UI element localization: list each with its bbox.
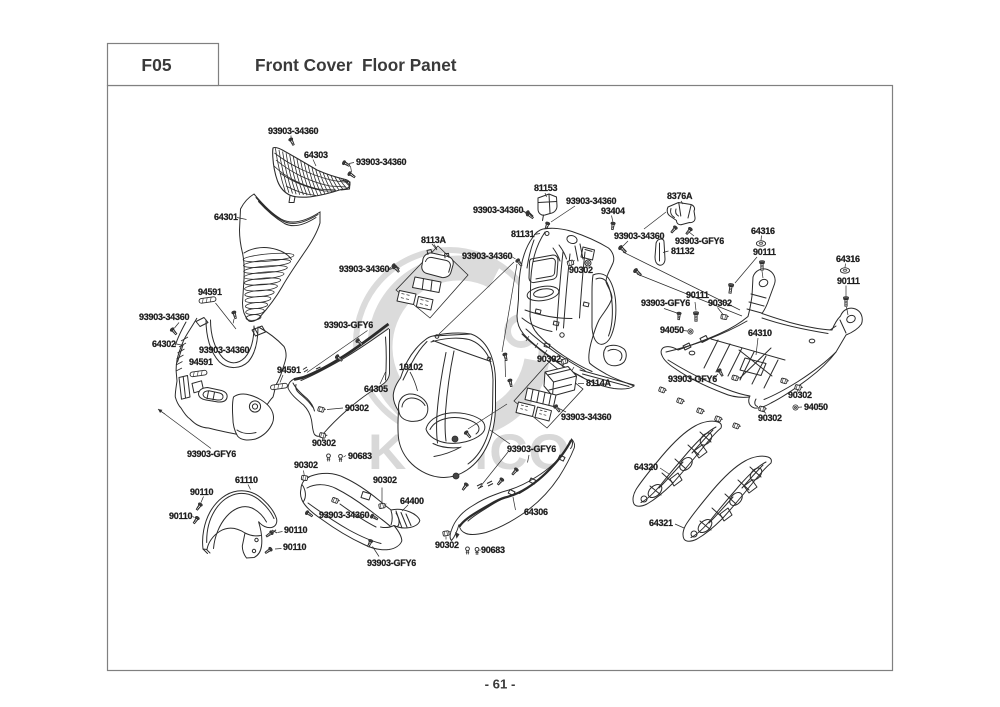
- svg-text:8114A: 8114A: [586, 378, 612, 388]
- svg-text:93903-GFY6: 93903-GFY6: [675, 236, 724, 246]
- svg-text:90302: 90302: [537, 354, 561, 364]
- svg-text:61110: 61110: [235, 475, 258, 485]
- svg-text:F05: F05: [141, 55, 171, 75]
- svg-text:8113A: 8113A: [421, 235, 447, 245]
- svg-text:93903-34360: 93903-34360: [473, 205, 524, 215]
- svg-text:90111: 90111: [753, 247, 776, 257]
- svg-text:64306: 64306: [524, 507, 548, 517]
- svg-text:93404: 93404: [601, 206, 625, 216]
- svg-text:90110: 90110: [190, 487, 214, 497]
- svg-text:64301: 64301: [214, 212, 238, 222]
- svg-text:64400: 64400: [400, 496, 424, 506]
- svg-text:90302: 90302: [788, 390, 812, 400]
- svg-text:90111: 90111: [686, 290, 709, 300]
- svg-text:19102: 19102: [399, 362, 423, 372]
- svg-text:90302: 90302: [708, 298, 732, 308]
- svg-text:81132: 81132: [671, 246, 695, 256]
- svg-text:93903-GFY6: 93903-GFY6: [324, 320, 373, 330]
- svg-text:64310: 64310: [748, 328, 772, 338]
- svg-text:64303: 64303: [304, 150, 328, 160]
- svg-text:90302: 90302: [758, 413, 782, 423]
- svg-text:93903-34360: 93903-34360: [319, 510, 370, 520]
- svg-text:93903-34360: 93903-34360: [566, 196, 617, 206]
- svg-text:94591: 94591: [277, 365, 301, 375]
- svg-text:93903-34360: 93903-34360: [561, 412, 612, 422]
- svg-text:81131: 81131: [511, 229, 535, 239]
- svg-text:90302: 90302: [435, 540, 459, 550]
- svg-text:64316: 64316: [836, 254, 860, 264]
- svg-text:93903-34360: 93903-34360: [356, 157, 407, 167]
- svg-text:90110: 90110: [169, 511, 193, 521]
- svg-text:90302: 90302: [312, 438, 336, 448]
- svg-text:94591: 94591: [189, 357, 213, 367]
- svg-text:90110: 90110: [284, 525, 308, 535]
- svg-text:93903-34360: 93903-34360: [268, 126, 319, 136]
- svg-text:93903-GFY6: 93903-GFY6: [187, 449, 236, 459]
- svg-text:90302: 90302: [345, 403, 369, 413]
- svg-text:90111: 90111: [837, 276, 860, 286]
- svg-text:93903-GFY6: 93903-GFY6: [507, 444, 556, 454]
- svg-text:Front Cover Floor Panet: Front Cover Floor Panet: [255, 55, 457, 75]
- svg-text:93903-34360: 93903-34360: [339, 264, 390, 274]
- svg-text:81153: 81153: [534, 183, 558, 193]
- svg-text:8376A: 8376A: [667, 191, 693, 201]
- svg-text:90302: 90302: [569, 265, 593, 275]
- svg-text:94591: 94591: [198, 287, 222, 297]
- svg-text:64305: 64305: [364, 384, 388, 394]
- svg-text:93903-34360: 93903-34360: [462, 251, 513, 261]
- svg-text:94050: 94050: [660, 325, 684, 335]
- svg-text:93903-GFY6: 93903-GFY6: [367, 558, 416, 568]
- svg-text:64321: 64321: [649, 518, 673, 528]
- svg-text:93903-34360: 93903-34360: [199, 345, 250, 355]
- svg-text:93903-GFY6: 93903-GFY6: [641, 298, 690, 308]
- svg-text:90110: 90110: [283, 542, 307, 552]
- svg-text:- 61 -: - 61 -: [485, 677, 516, 692]
- svg-text:90302: 90302: [373, 475, 397, 485]
- svg-text:64320: 64320: [634, 462, 658, 472]
- svg-text:93903-GFY6: 93903-GFY6: [668, 374, 717, 384]
- svg-text:64316: 64316: [751, 226, 775, 236]
- svg-text:93903-34360: 93903-34360: [614, 231, 665, 241]
- svg-text:93903-34360: 93903-34360: [139, 312, 190, 322]
- svg-text:90302: 90302: [294, 460, 318, 470]
- svg-text:90683: 90683: [348, 451, 372, 461]
- svg-text:90683: 90683: [481, 545, 505, 555]
- svg-text:64302: 64302: [152, 339, 176, 349]
- svg-text:94050: 94050: [804, 402, 828, 412]
